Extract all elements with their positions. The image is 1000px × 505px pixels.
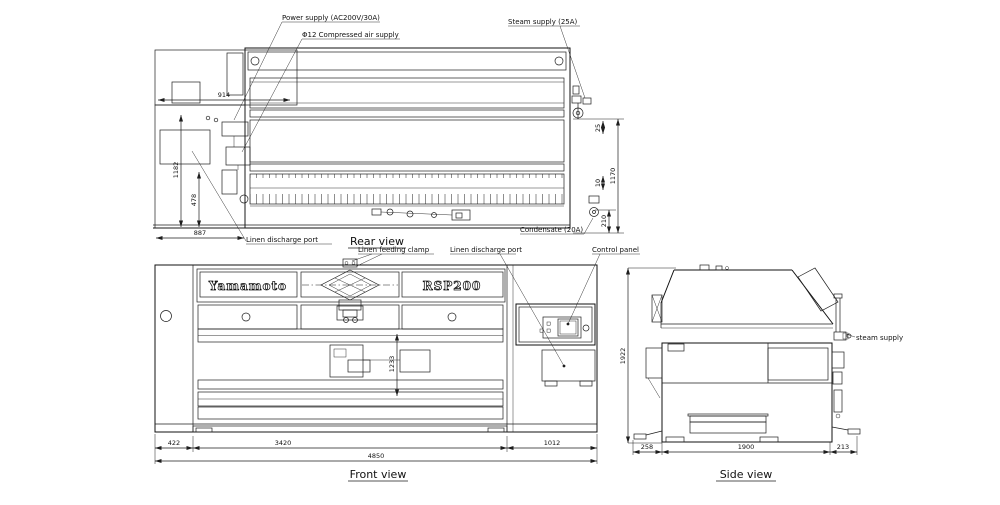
label-power-supply: Power supply (AC200V/30A) (282, 14, 380, 22)
panel-button (547, 322, 550, 325)
dim-rear-top-width: 914 (218, 91, 230, 99)
dim-side-body-depth: 1900 (738, 443, 755, 451)
dim-front-total-width: 4850 (368, 452, 385, 460)
front-view: Yamamoto RSP200 (155, 246, 640, 481)
front-control-cabinet (516, 304, 595, 386)
label-steam-supply-side: steam supply (856, 334, 903, 342)
side-view: steam supply 1922 258 1900 213 Side view (619, 265, 903, 481)
maker-logo-text: Yamamoto (208, 279, 287, 293)
side-view-title: Side view (720, 468, 773, 481)
rear-condensate-outlet (589, 196, 599, 217)
rear-roller-strip-lower (250, 164, 564, 171)
rear-clamp-bar (248, 52, 566, 70)
label-linen-discharge-rear: Linen discharge port (246, 236, 318, 244)
front-view-title: Front view (350, 468, 407, 481)
dim-front-right-width: 1012 (544, 439, 561, 447)
dim-front-left-width: 422 (168, 439, 180, 447)
side-vent-grille (690, 422, 766, 433)
label-linen-discharge-front: Linen discharge port (450, 246, 522, 254)
front-top-panels: Yamamoto RSP200 (197, 259, 505, 323)
dim-rear-left-height: 1182 (172, 162, 180, 179)
control-panel-box (543, 317, 581, 338)
dim-rear-pipe-offset: 10 (594, 179, 602, 187)
front-base-strip (193, 426, 507, 432)
side-vent-grille-top (690, 416, 766, 422)
label-steam-supply: Steam supply (25A) (508, 18, 578, 26)
rear-roller-strip-upper (250, 110, 564, 117)
dim-rear-right-height: 1170 (609, 168, 617, 185)
dim-side-rear-depth: 213 (837, 443, 849, 451)
dim-side-front-depth: 258 (641, 443, 653, 451)
rear-pneumatic-cluster (206, 116, 250, 203)
label-linen-feeding-clamp: Linen feeding clamp (358, 246, 430, 254)
dim-rear-bottom-width: 887 (194, 229, 206, 237)
front-middle-assembly (330, 345, 430, 377)
side-body (634, 343, 860, 442)
control-panel-screen (558, 319, 578, 336)
front-rib-band-1 (198, 380, 503, 389)
rear-ironing-chest (250, 120, 564, 162)
rear-steam-inlet (572, 86, 591, 119)
panel-dial (583, 325, 589, 331)
dim-rear-condensate-height: 210 (600, 215, 608, 227)
clamp-bar-end-left (251, 57, 259, 65)
rear-discharge-box (160, 130, 210, 164)
side-left-bracket (646, 348, 662, 378)
label-condensate: Condensate (20A) (520, 226, 583, 234)
engineering-drawing-sheet: 914 1182 478 887 25 10 1170 210 Power su… (0, 0, 1000, 505)
front-rib-band-3 (198, 407, 503, 419)
panel-button (547, 329, 550, 332)
rear-view: 914 1182 478 887 25 10 1170 210 Power su… (153, 14, 624, 248)
drawing-svg: 914 1182 478 887 25 10 1170 210 Power su… (0, 0, 1000, 505)
model-text: RSP200 (423, 279, 482, 293)
front-discharge-box (542, 350, 595, 381)
side-roof (652, 265, 838, 328)
side-steam-pipe: steam supply (832, 294, 903, 418)
front-left-porthole (161, 311, 172, 322)
clamp-bar-end-right (555, 57, 563, 65)
dim-rear-steam-offset: 25 (594, 124, 602, 132)
dim-side-height: 1922 (619, 348, 627, 365)
dim-rear-left-lower-height: 478 (190, 194, 198, 206)
label-control-panel: Control panel (592, 246, 639, 254)
dim-front-roller-height: 1233 (388, 356, 396, 373)
side-dimensions: 1922 258 1900 213 (619, 268, 857, 455)
rear-bottom-fittings (372, 209, 470, 220)
front-dimensions: 422 3420 1012 4850 (155, 434, 597, 464)
label-compressed-air: Φ12 Compressed air supply (302, 31, 399, 39)
dim-front-body-width: 3420 (275, 439, 292, 447)
